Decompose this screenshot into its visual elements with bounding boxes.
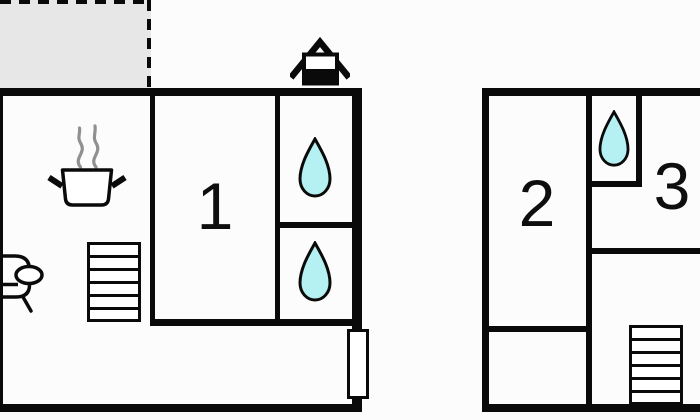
wall-room2-bottom <box>487 326 587 332</box>
door-icon <box>347 329 369 399</box>
room-2-label: 2 <box>487 170 587 236</box>
stairs-icon <box>629 325 683 405</box>
terrace-dashed-border-top <box>0 0 151 4</box>
wall-bath-divider <box>278 222 362 228</box>
terrace-dashed-border-right <box>147 0 151 90</box>
wall-bottom <box>0 404 362 412</box>
house-icon <box>290 34 350 86</box>
floor-plan-canvas: 1 2 3 <box>0 0 700 420</box>
wall-left <box>482 88 489 412</box>
cooking-pot-icon <box>44 124 128 208</box>
water-drop-icon <box>297 137 333 199</box>
wall-bottom <box>482 404 700 412</box>
room-1-label: 1 <box>150 173 280 239</box>
wall-top <box>0 88 362 96</box>
steam-icon <box>78 126 98 167</box>
water-drop-icon <box>297 241 333 303</box>
room-3-label: 3 <box>640 153 700 219</box>
wall-bath-bottom <box>586 181 642 187</box>
sofa-icon <box>0 248 48 318</box>
wall-room1-bottom <box>150 319 362 326</box>
stairs-icon <box>87 242 141 322</box>
terrace-area <box>0 0 151 90</box>
wall-room3-bottom <box>590 248 700 254</box>
water-drop-icon <box>597 110 631 168</box>
